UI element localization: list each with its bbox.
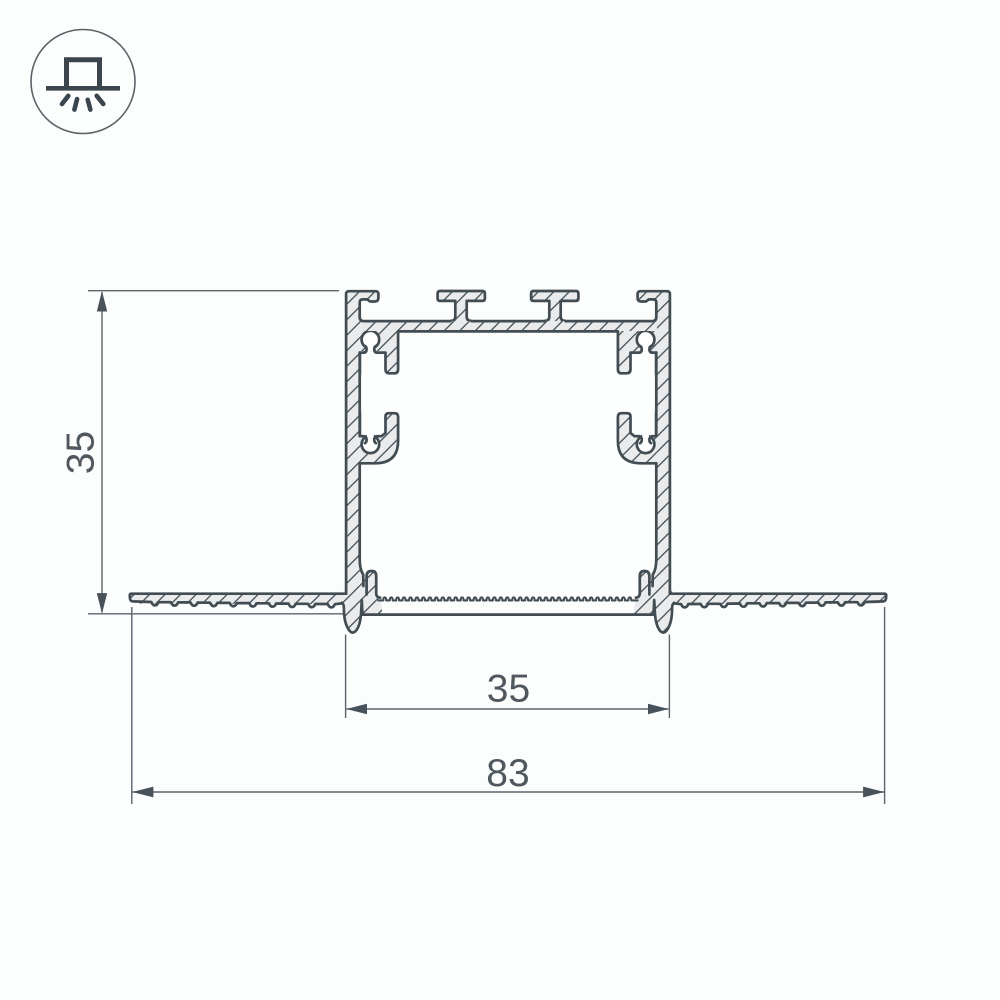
svg-text:83: 83 [486, 752, 529, 795]
svg-text:35: 35 [487, 668, 530, 711]
svg-text:35: 35 [60, 431, 103, 474]
